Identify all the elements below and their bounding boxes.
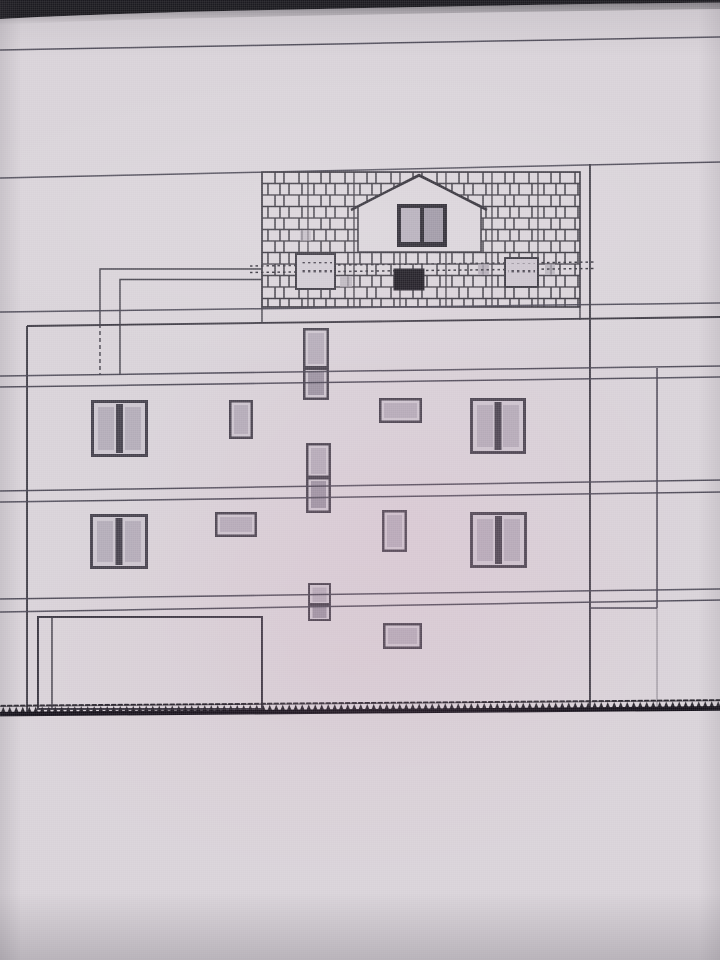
window-lower-small-portrait: [382, 510, 407, 552]
photographed-elevation-drawing: [0, 0, 720, 960]
paper-background: [0, 0, 720, 960]
roof-vent-grille-left: [296, 254, 335, 289]
dormer-window-right-pane: [424, 208, 443, 242]
mullion: [116, 404, 123, 453]
roof-dark-vent: [394, 269, 424, 290]
window-upper-small-landscape: [379, 398, 422, 423]
elevation-drawing-svg: [0, 0, 720, 960]
mullion: [495, 402, 502, 450]
window-basement-small: [383, 623, 422, 649]
window-upper-right-double: [470, 398, 526, 454]
mullion: [116, 518, 123, 565]
mullion: [495, 516, 502, 564]
window-upper-small-portrait: [229, 400, 253, 439]
roof-vent-grille-right: [505, 258, 538, 287]
stair-window-1: [303, 328, 329, 400]
dormer-window: [397, 204, 447, 247]
window-upper-left-double: [91, 400, 148, 457]
stair-window-3: [308, 583, 331, 621]
stair-window-2: [306, 443, 331, 513]
dormer-window-left-pane: [401, 208, 420, 242]
window-lower-right-double: [470, 512, 527, 568]
window-lower-small-landscape: [215, 512, 257, 537]
window-lower-left-double: [90, 514, 148, 569]
